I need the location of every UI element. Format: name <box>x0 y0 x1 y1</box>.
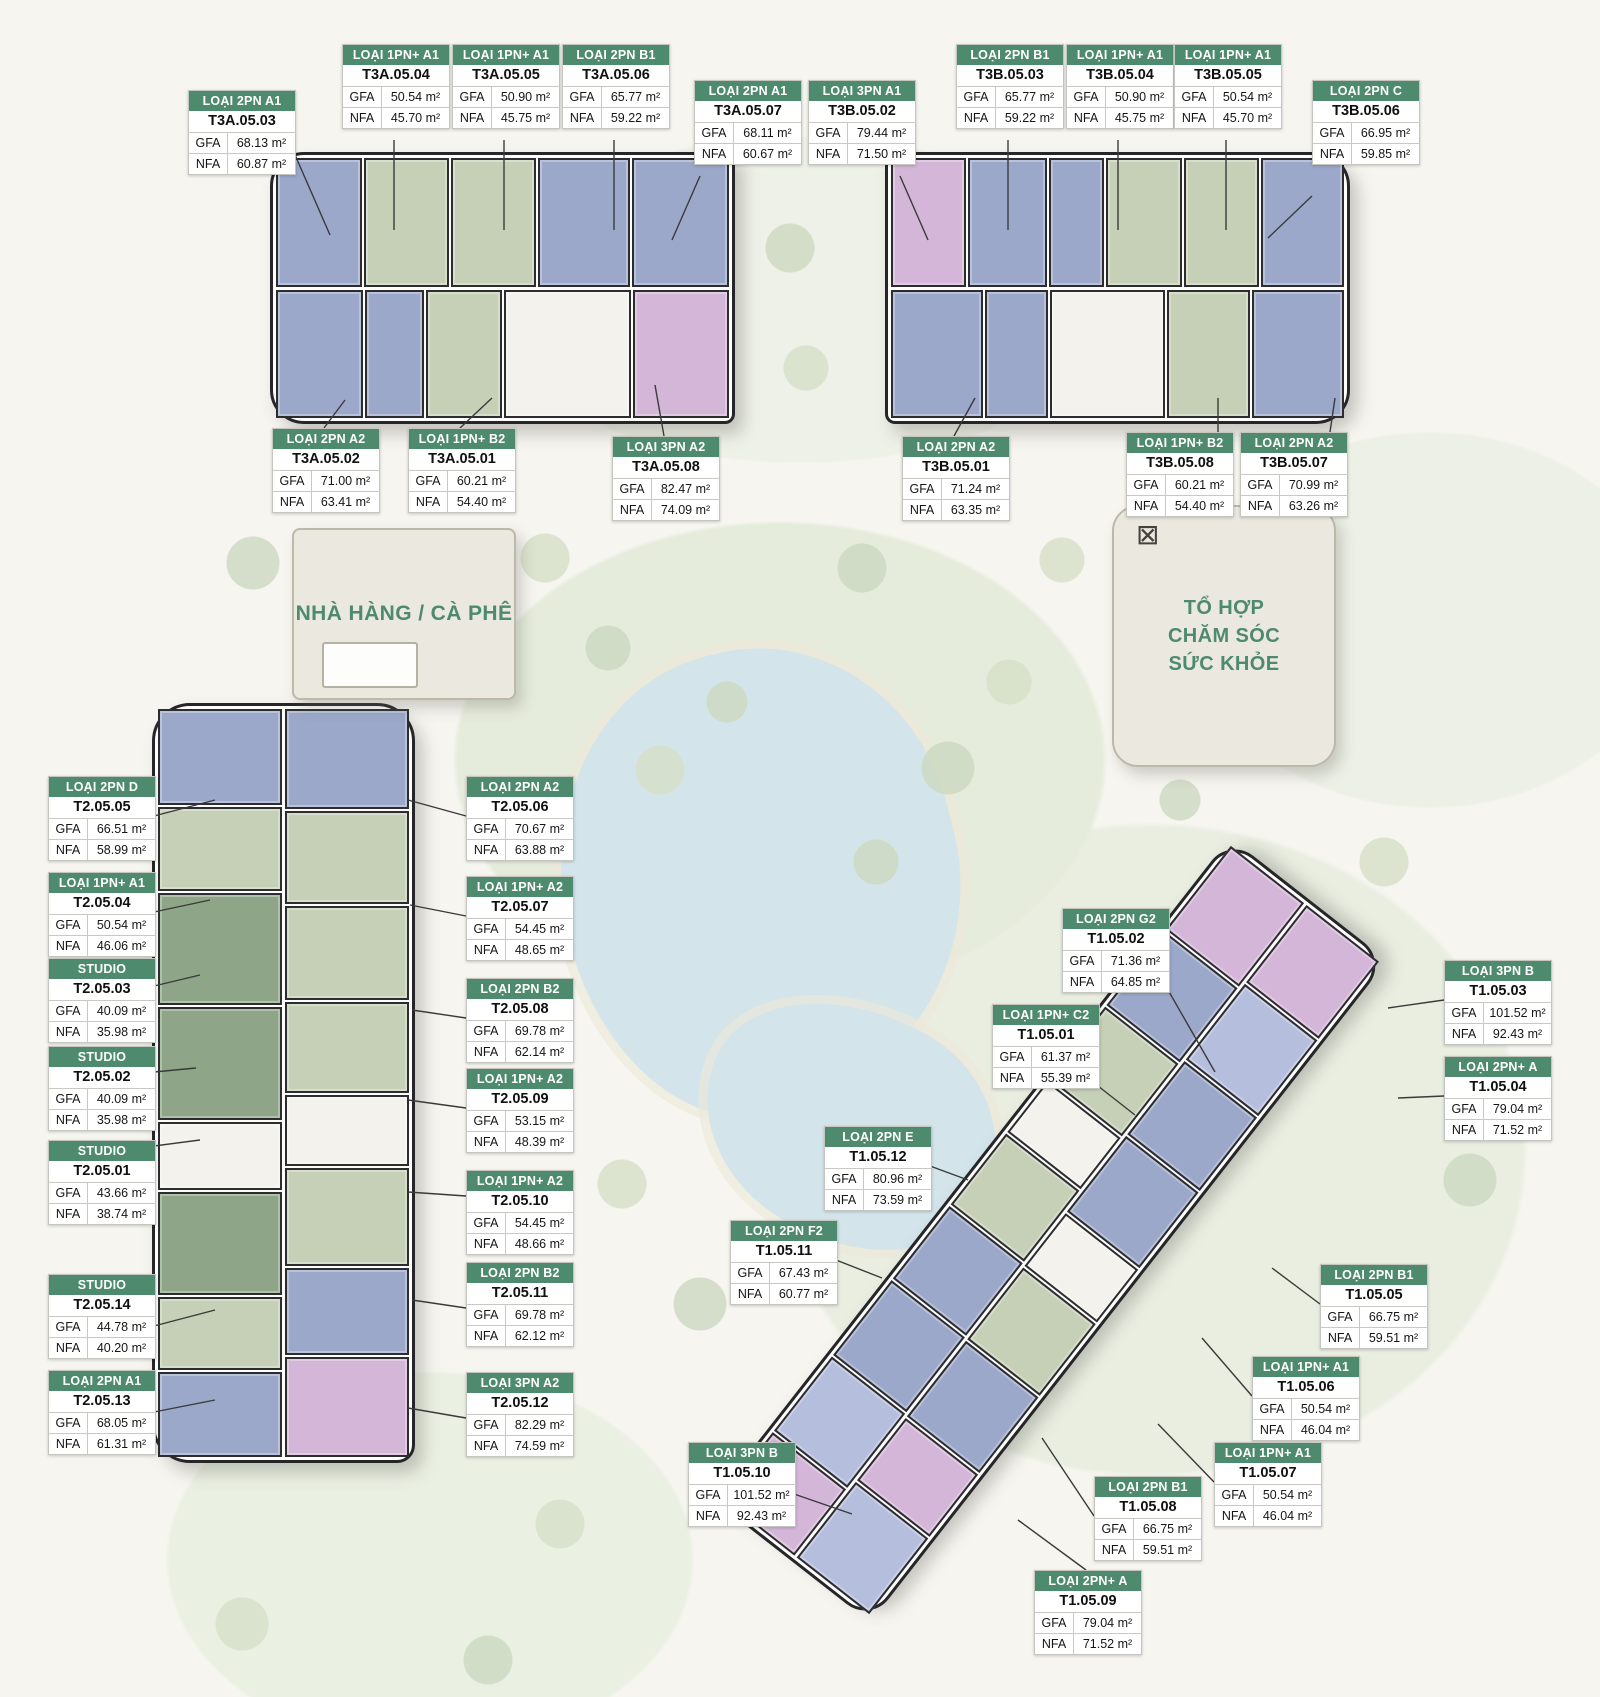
unit-label-T1.05.04[interactable]: LOẠI 2PN+ A T1.05.04 GFA 79.04 m² NFA 71… <box>1444 1056 1552 1141</box>
gfa-row: GFA 50.54 m² <box>343 86 449 107</box>
gfa-key: GFA <box>825 1169 864 1189</box>
nfa-value: 73.59 m² <box>864 1190 931 1210</box>
unit-code: T1.05.08 <box>1095 1497 1201 1518</box>
nfa-row: NFA 45.70 m² <box>343 107 449 128</box>
unit-label-T2.05.04[interactable]: LOẠI 1PN+ A1 T2.05.04 GFA 50.54 m² NFA 4… <box>48 872 156 957</box>
nfa-row: NFA 45.75 m² <box>1067 107 1173 128</box>
nfa-value: 59.51 m² <box>1134 1540 1201 1560</box>
unit-type-header: LOẠI 1PN+ A1 <box>1215 1443 1321 1463</box>
gfa-value: 60.21 m² <box>1166 475 1233 495</box>
nfa-row: NFA 73.59 m² <box>825 1189 931 1210</box>
nfa-key: NFA <box>273 492 312 512</box>
gfa-row: GFA 69.78 m² <box>467 1304 573 1325</box>
nfa-key: NFA <box>1063 972 1102 992</box>
unit-type-header: LOẠI 1PN+ A1 <box>1253 1357 1359 1377</box>
gfa-key: GFA <box>1321 1307 1360 1327</box>
gfa-value: 68.05 m² <box>88 1413 155 1433</box>
nfa-value: 48.65 m² <box>506 940 573 960</box>
unit-type-header: LOẠI 1PN+ A1 <box>1175 45 1281 65</box>
nfa-value: 58.99 m² <box>88 840 155 860</box>
unit-type-header: LOẠI 1PN+ C2 <box>993 1005 1099 1025</box>
unit-code: T1.05.12 <box>825 1147 931 1168</box>
nfa-key: NFA <box>1313 144 1352 164</box>
unit-code: T1.05.07 <box>1215 1463 1321 1484</box>
gfa-key: GFA <box>467 919 506 939</box>
unit-type-header: LOẠI 2PN A1 <box>189 91 295 111</box>
nfa-value: 54.40 m² <box>448 492 515 512</box>
unit-code: T3A.05.02 <box>273 449 379 470</box>
unit-label-T2.05.06[interactable]: LOẠI 2PN A2 T2.05.06 GFA 70.67 m² NFA 63… <box>466 776 574 861</box>
gfa-row: GFA 66.51 m² <box>49 818 155 839</box>
unit-code: T2.05.05 <box>49 797 155 818</box>
nfa-key: NFA <box>49 1204 88 1224</box>
nfa-value: 63.88 m² <box>506 840 573 860</box>
gfa-value: 66.51 m² <box>88 819 155 839</box>
gfa-row: GFA 79.04 m² <box>1035 1612 1141 1633</box>
unit-type-header: LOẠI 2PN B1 <box>1321 1265 1427 1285</box>
nfa-row: NFA 48.39 m² <box>467 1131 573 1152</box>
gfa-value: 61.37 m² <box>1032 1047 1099 1067</box>
nfa-value: 45.75 m² <box>1106 108 1173 128</box>
gfa-value: 82.47 m² <box>652 479 719 499</box>
unit-label-T2.05.09[interactable]: LOẠI 1PN+ A2 T2.05.09 GFA 53.15 m² NFA 4… <box>466 1068 574 1153</box>
nfa-value: 48.66 m² <box>506 1234 573 1254</box>
nfa-value: 92.43 m² <box>728 1506 795 1526</box>
unit-type-header: LOẠI 2PN+ A <box>1035 1571 1141 1591</box>
gfa-row: GFA 101.52 m² <box>1445 1002 1551 1023</box>
unit-label-T3A.05.08[interactable]: LOẠI 3PN A2 T3A.05.08 GFA 82.47 m² NFA 7… <box>612 436 720 521</box>
unit-label-T3A.05.01[interactable]: LOẠI 1PN+ B2 T3A.05.01 GFA 60.21 m² NFA … <box>408 428 516 513</box>
gfa-key: GFA <box>467 1213 506 1233</box>
gfa-row: GFA 66.95 m² <box>1313 122 1419 143</box>
gfa-row: GFA 43.66 m² <box>49 1182 155 1203</box>
nfa-value: 63.35 m² <box>942 500 1009 520</box>
nfa-key: NFA <box>1067 108 1106 128</box>
gfa-key: GFA <box>49 1089 88 1109</box>
unit-label-T3B.05.03[interactable]: LOẠI 2PN B1 T3B.05.03 GFA 65.77 m² NFA 5… <box>956 44 1064 129</box>
gfa-value: 79.44 m² <box>848 123 915 143</box>
nfa-key: NFA <box>825 1190 864 1210</box>
nfa-key: NFA <box>49 936 88 956</box>
nfa-key: NFA <box>1175 108 1214 128</box>
unit-label-T3B.05.04[interactable]: LOẠI 1PN+ A1 T3B.05.04 GFA 50.90 m² NFA … <box>1066 44 1174 129</box>
nfa-value: 62.14 m² <box>506 1042 573 1062</box>
nfa-row: NFA 71.50 m² <box>809 143 915 164</box>
gfa-row: GFA 82.47 m² <box>613 478 719 499</box>
unit-label-T2.05.08[interactable]: LOẠI 2PN B2 T2.05.08 GFA 69.78 m² NFA 62… <box>466 978 574 1063</box>
unit-label-T1.05.02[interactable]: LOẠI 2PN G2 T1.05.02 GFA 71.36 m² NFA 64… <box>1062 908 1170 993</box>
gfa-key: GFA <box>467 819 506 839</box>
unit-label-T1.05.09[interactable]: LOẠI 2PN+ A T1.05.09 GFA 79.04 m² NFA 71… <box>1034 1570 1142 1655</box>
nfa-key: NFA <box>467 1042 506 1062</box>
unit-type-header: LOẠI 2PN A2 <box>1241 433 1347 453</box>
gfa-value: 44.78 m² <box>88 1317 155 1337</box>
unit-code: T1.05.09 <box>1035 1591 1141 1612</box>
gfa-row: GFA 66.75 m² <box>1095 1518 1201 1539</box>
unit-code: T1.05.02 <box>1063 929 1169 950</box>
gfa-value: 53.15 m² <box>506 1111 573 1131</box>
unit-label-T2.05.11[interactable]: LOẠI 2PN B2 T2.05.11 GFA 69.78 m² NFA 62… <box>466 1262 574 1347</box>
gfa-key: GFA <box>993 1047 1032 1067</box>
gfa-key: GFA <box>689 1485 728 1505</box>
unit-label-T3B.05.01[interactable]: LOẠI 2PN A2 T3B.05.01 GFA 71.24 m² NFA 6… <box>902 436 1010 521</box>
unit-type-header: LOẠI 1PN+ A2 <box>467 1069 573 1089</box>
gfa-key: GFA <box>1241 475 1280 495</box>
unit-code: T3B.05.08 <box>1127 453 1233 474</box>
unit-type-header: LOẠI 1PN+ B2 <box>1127 433 1233 453</box>
nfa-value: 40.20 m² <box>88 1338 155 1358</box>
nfa-value: 59.22 m² <box>602 108 669 128</box>
unit-code: T2.05.12 <box>467 1393 573 1414</box>
unit-code: T3B.05.07 <box>1241 453 1347 474</box>
gfa-key: GFA <box>273 471 312 491</box>
unit-label-T2.05.03[interactable]: STUDIO T2.05.03 GFA 40.09 m² NFA 35.98 m… <box>48 958 156 1043</box>
nfa-key: NFA <box>453 108 492 128</box>
gfa-key: GFA <box>49 1413 88 1433</box>
unit-label-T1.05.03[interactable]: LOẠI 3PN B T1.05.03 GFA 101.52 m² NFA 92… <box>1444 960 1552 1045</box>
gfa-key: GFA <box>1035 1613 1074 1633</box>
unit-code: T3A.05.03 <box>189 111 295 132</box>
nfa-value: 74.59 m² <box>506 1436 573 1456</box>
gfa-row: GFA 44.78 m² <box>49 1316 155 1337</box>
unit-type-header: STUDIO <box>49 1141 155 1161</box>
unit-type-header: LOẠI 2PN+ A <box>1445 1057 1551 1077</box>
unit-label-T1.05.06[interactable]: LOẠI 1PN+ A1 T1.05.06 GFA 50.54 m² NFA 4… <box>1252 1356 1360 1441</box>
unit-label-T3B.05.08[interactable]: LOẠI 1PN+ B2 T3B.05.08 GFA 60.21 m² NFA … <box>1126 432 1234 517</box>
nfa-value: 60.87 m² <box>228 154 295 174</box>
nfa-row: NFA 59.51 m² <box>1095 1539 1201 1560</box>
nfa-value: 54.40 m² <box>1166 496 1233 516</box>
nfa-value: 71.52 m² <box>1484 1120 1551 1140</box>
nfa-row: NFA 59.22 m² <box>563 107 669 128</box>
gfa-row: GFA 53.15 m² <box>467 1110 573 1131</box>
nfa-key: NFA <box>613 500 652 520</box>
nfa-row: NFA 63.41 m² <box>273 491 379 512</box>
gfa-row: GFA 50.54 m² <box>1215 1484 1321 1505</box>
unit-type-header: LOẠI 2PN A1 <box>695 81 801 101</box>
unit-code: T3A.05.05 <box>453 65 559 86</box>
unit-label-T1.05.12[interactable]: LOẠI 2PN E T1.05.12 GFA 80.96 m² NFA 73.… <box>824 1126 932 1211</box>
gfa-value: 43.66 m² <box>88 1183 155 1203</box>
nfa-row: NFA 45.75 m² <box>453 107 559 128</box>
nfa-key: NFA <box>343 108 382 128</box>
unit-label-T1.05.11[interactable]: LOẠI 2PN F2 T1.05.11 GFA 67.43 m² NFA 60… <box>730 1220 838 1305</box>
gfa-value: 65.77 m² <box>996 87 1063 107</box>
unit-label-T2.05.12[interactable]: LOẠI 3PN A2 T2.05.12 GFA 82.29 m² NFA 74… <box>466 1372 574 1457</box>
nfa-key: NFA <box>1035 1634 1074 1654</box>
nfa-value: 59.22 m² <box>996 108 1063 128</box>
nfa-row: NFA 55.39 m² <box>993 1067 1099 1088</box>
gfa-row: GFA 40.09 m² <box>49 1000 155 1021</box>
nfa-key: NFA <box>467 1234 506 1254</box>
unit-label-T1.05.10[interactable]: LOẠI 3PN B T1.05.10 GFA 101.52 m² NFA 92… <box>688 1442 796 1527</box>
gfa-key: GFA <box>1445 1003 1484 1023</box>
gfa-key: GFA <box>695 123 734 143</box>
gfa-value: 50.90 m² <box>492 87 559 107</box>
nfa-key: NFA <box>49 1434 88 1454</box>
gfa-row: GFA 50.54 m² <box>49 914 155 935</box>
unit-type-header: LOẠI 2PN A2 <box>273 429 379 449</box>
nfa-row: NFA 58.99 m² <box>49 839 155 860</box>
unit-type-header: LOẠI 2PN D <box>49 777 155 797</box>
nfa-row: NFA 60.67 m² <box>695 143 801 164</box>
gfa-value: 66.95 m² <box>1352 123 1419 143</box>
unit-label-T2.05.05[interactable]: LOẠI 2PN D T2.05.05 GFA 66.51 m² NFA 58.… <box>48 776 156 861</box>
nfa-row: NFA 45.70 m² <box>1175 107 1281 128</box>
unit-label-T1.05.05[interactable]: LOẠI 2PN B1 T1.05.05 GFA 66.75 m² NFA 59… <box>1320 1264 1428 1349</box>
unit-type-header: LOẠI 3PN B <box>1445 961 1551 981</box>
gfa-value: 82.29 m² <box>506 1415 573 1435</box>
unit-type-header: LOẠI 1PN+ B2 <box>409 429 515 449</box>
gfa-key: GFA <box>1067 87 1106 107</box>
nfa-row: NFA 59.22 m² <box>957 107 1063 128</box>
unit-type-header: LOẠI 1PN+ A1 <box>343 45 449 65</box>
nfa-value: 60.77 m² <box>770 1284 837 1304</box>
gfa-key: GFA <box>343 87 382 107</box>
gfa-row: GFA 65.77 m² <box>957 86 1063 107</box>
nfa-row: NFA 60.77 m² <box>731 1283 837 1304</box>
unit-code: T3B.05.03 <box>957 65 1063 86</box>
nfa-row: NFA 74.09 m² <box>613 499 719 520</box>
nfa-value: 45.70 m² <box>1214 108 1281 128</box>
gfa-value: 65.77 m² <box>602 87 669 107</box>
unit-type-header: LOẠI 1PN+ A2 <box>467 1171 573 1191</box>
nfa-key: NFA <box>563 108 602 128</box>
unit-type-header: LOẠI 2PN E <box>825 1127 931 1147</box>
unit-type-header: LOẠI 3PN B <box>689 1443 795 1463</box>
gfa-row: GFA 54.45 m² <box>467 1212 573 1233</box>
gfa-key: GFA <box>467 1021 506 1041</box>
gfa-row: GFA 60.21 m² <box>1127 474 1233 495</box>
unit-code: T2.05.10 <box>467 1191 573 1212</box>
gfa-value: 50.54 m² <box>1292 1399 1359 1419</box>
nfa-key: NFA <box>467 940 506 960</box>
nfa-row: NFA 62.14 m² <box>467 1041 573 1062</box>
unit-code: T3A.05.04 <box>343 65 449 86</box>
nfa-row: NFA 92.43 m² <box>1445 1023 1551 1044</box>
gfa-row: GFA 50.90 m² <box>453 86 559 107</box>
gfa-row: GFA 50.54 m² <box>1175 86 1281 107</box>
unit-label-T2.05.07[interactable]: LOẠI 1PN+ A2 T2.05.07 GFA 54.45 m² NFA 4… <box>466 876 574 961</box>
nfa-row: NFA 61.31 m² <box>49 1433 155 1454</box>
gfa-value: 101.52 m² <box>728 1485 795 1505</box>
gfa-key: GFA <box>903 479 942 499</box>
unit-label-T2.05.14[interactable]: STUDIO T2.05.14 GFA 44.78 m² NFA 40.20 m… <box>48 1274 156 1359</box>
nfa-row: NFA 71.52 m² <box>1445 1119 1551 1140</box>
nfa-key: NFA <box>467 840 506 860</box>
unit-type-header: STUDIO <box>49 1275 155 1295</box>
unit-label-T2.05.02[interactable]: STUDIO T2.05.02 GFA 40.09 m² NFA 35.98 m… <box>48 1046 156 1131</box>
nfa-value: 63.26 m² <box>1280 496 1347 516</box>
nfa-key: NFA <box>49 840 88 860</box>
nfa-key: NFA <box>1215 1506 1254 1526</box>
gfa-row: GFA 40.09 m² <box>49 1088 155 1109</box>
nfa-row: NFA 74.59 m² <box>467 1435 573 1456</box>
nfa-key: NFA <box>1445 1120 1484 1140</box>
nfa-value: 38.74 m² <box>88 1204 155 1224</box>
gfa-row: GFA 50.54 m² <box>1253 1398 1359 1419</box>
nfa-key: NFA <box>689 1506 728 1526</box>
nfa-key: NFA <box>49 1110 88 1130</box>
unit-label-T3A.05.03[interactable]: LOẠI 2PN A1 T3A.05.03 GFA 68.13 m² NFA 6… <box>188 90 296 175</box>
unit-type-header: LOẠI 2PN B1 <box>957 45 1063 65</box>
site-floorplan: NHÀ HÀNG / CÀ PHÊ ⊠ TỔ HỢP CHĂM SÓC SỨC … <box>0 0 1600 1697</box>
gfa-value: 60.21 m² <box>448 471 515 491</box>
gfa-value: 50.54 m² <box>382 87 449 107</box>
gfa-value: 71.00 m² <box>312 471 379 491</box>
unit-label-T2.05.01[interactable]: STUDIO T2.05.01 GFA 43.66 m² NFA 38.74 m… <box>48 1140 156 1225</box>
nfa-value: 46.04 m² <box>1254 1506 1321 1526</box>
gfa-value: 54.45 m² <box>506 919 573 939</box>
nfa-value: 74.09 m² <box>652 500 719 520</box>
unit-code: T1.05.11 <box>731 1241 837 1262</box>
unit-code: T3A.05.01 <box>409 449 515 470</box>
gfa-value: 40.09 m² <box>88 1089 155 1109</box>
gfa-value: 50.54 m² <box>1214 87 1281 107</box>
gfa-row: GFA 80.96 m² <box>825 1168 931 1189</box>
gfa-key: GFA <box>1445 1099 1484 1119</box>
nfa-row: NFA 64.85 m² <box>1063 971 1169 992</box>
nfa-key: NFA <box>1127 496 1166 516</box>
nfa-row: NFA 35.98 m² <box>49 1021 155 1042</box>
nfa-row: NFA 38.74 m² <box>49 1203 155 1224</box>
unit-label-T3A.05.04[interactable]: LOẠI 1PN+ A1 T3A.05.04 GFA 50.54 m² NFA … <box>342 44 450 129</box>
nfa-row: NFA 63.35 m² <box>903 499 1009 520</box>
nfa-key: NFA <box>993 1068 1032 1088</box>
unit-code: T3B.05.06 <box>1313 101 1419 122</box>
nfa-row: NFA 40.20 m² <box>49 1337 155 1358</box>
gfa-key: GFA <box>49 915 88 935</box>
nfa-row: NFA 46.04 m² <box>1253 1419 1359 1440</box>
nfa-row: NFA 46.06 m² <box>49 935 155 956</box>
unit-code: T2.05.13 <box>49 1391 155 1412</box>
unit-code: T3B.05.04 <box>1067 65 1173 86</box>
gfa-row: GFA 66.75 m² <box>1321 1306 1427 1327</box>
gfa-key: GFA <box>1127 475 1166 495</box>
nfa-key: NFA <box>1445 1024 1484 1044</box>
labels-layer: LOẠI 2PN A1 T3A.05.03 GFA 68.13 m² NFA 6… <box>0 0 1600 1697</box>
nfa-row: NFA 35.98 m² <box>49 1109 155 1130</box>
gfa-row: GFA 101.52 m² <box>689 1484 795 1505</box>
gfa-key: GFA <box>563 87 602 107</box>
unit-label-T1.05.08[interactable]: LOẠI 2PN B1 T1.05.08 GFA 66.75 m² NFA 59… <box>1094 1476 1202 1561</box>
unit-label-T2.05.10[interactable]: LOẠI 1PN+ A2 T2.05.10 GFA 54.45 m² NFA 4… <box>466 1170 574 1255</box>
gfa-row: GFA 79.04 m² <box>1445 1098 1551 1119</box>
gfa-row: GFA 71.00 m² <box>273 470 379 491</box>
unit-type-header: LOẠI 1PN+ A1 <box>453 45 559 65</box>
gfa-row: GFA 54.45 m² <box>467 918 573 939</box>
unit-code: T1.05.06 <box>1253 1377 1359 1398</box>
nfa-row: NFA 59.51 m² <box>1321 1327 1427 1348</box>
gfa-row: GFA 71.36 m² <box>1063 950 1169 971</box>
nfa-value: 64.85 m² <box>1102 972 1169 992</box>
unit-label-T3B.05.07[interactable]: LOẠI 2PN A2 T3B.05.07 GFA 70.99 m² NFA 6… <box>1240 432 1348 517</box>
gfa-key: GFA <box>613 479 652 499</box>
unit-type-header: LOẠI 2PN B1 <box>1095 1477 1201 1497</box>
gfa-key: GFA <box>1095 1519 1134 1539</box>
gfa-value: 70.99 m² <box>1280 475 1347 495</box>
nfa-key: NFA <box>695 144 734 164</box>
unit-code: T3A.05.08 <box>613 457 719 478</box>
gfa-row: GFA 68.05 m² <box>49 1412 155 1433</box>
gfa-key: GFA <box>49 1317 88 1337</box>
gfa-value: 80.96 m² <box>864 1169 931 1189</box>
unit-code: T2.05.06 <box>467 797 573 818</box>
gfa-value: 69.78 m² <box>506 1021 573 1041</box>
gfa-row: GFA 61.37 m² <box>993 1046 1099 1067</box>
nfa-row: NFA 63.26 m² <box>1241 495 1347 516</box>
nfa-value: 55.39 m² <box>1032 1068 1099 1088</box>
unit-code: T2.05.11 <box>467 1283 573 1304</box>
unit-code: T3A.05.07 <box>695 101 801 122</box>
gfa-row: GFA 50.90 m² <box>1067 86 1173 107</box>
nfa-row: NFA 48.66 m² <box>467 1233 573 1254</box>
gfa-row: GFA 82.29 m² <box>467 1414 573 1435</box>
gfa-value: 50.54 m² <box>1254 1485 1321 1505</box>
nfa-key: NFA <box>1095 1540 1134 1560</box>
unit-code: T3B.05.05 <box>1175 65 1281 86</box>
nfa-key: NFA <box>1241 496 1280 516</box>
unit-type-header: LOẠI 2PN A2 <box>467 777 573 797</box>
nfa-value: 63.41 m² <box>312 492 379 512</box>
unit-label-T3A.05.02[interactable]: LOẠI 2PN A2 T3A.05.02 GFA 71.00 m² NFA 6… <box>272 428 380 513</box>
gfa-key: GFA <box>731 1263 770 1283</box>
nfa-row: NFA 46.04 m² <box>1215 1505 1321 1526</box>
nfa-key: NFA <box>467 1132 506 1152</box>
unit-type-header: LOẠI 3PN A2 <box>613 437 719 457</box>
gfa-row: GFA 65.77 m² <box>563 86 669 107</box>
unit-code: T3B.05.02 <box>809 101 915 122</box>
unit-code: T2.05.14 <box>49 1295 155 1316</box>
nfa-value: 92.43 m² <box>1484 1024 1551 1044</box>
gfa-row: GFA 79.44 m² <box>809 122 915 143</box>
nfa-key: NFA <box>49 1022 88 1042</box>
unit-label-T3A.05.07[interactable]: LOẠI 2PN A1 T3A.05.07 GFA 68.11 m² NFA 6… <box>694 80 802 165</box>
gfa-row: GFA 69.78 m² <box>467 1020 573 1041</box>
gfa-key: GFA <box>467 1111 506 1131</box>
gfa-value: 79.04 m² <box>1484 1099 1551 1119</box>
unit-type-header: LOẠI 1PN+ A1 <box>1067 45 1173 65</box>
unit-label-T3B.05.06[interactable]: LOẠI 2PN C T3B.05.06 GFA 66.95 m² NFA 59… <box>1312 80 1420 165</box>
gfa-value: 71.24 m² <box>942 479 1009 499</box>
nfa-row: NFA 71.52 m² <box>1035 1633 1141 1654</box>
unit-code: T1.05.01 <box>993 1025 1099 1046</box>
unit-type-header: STUDIO <box>49 1047 155 1067</box>
gfa-key: GFA <box>467 1415 506 1435</box>
gfa-row: GFA 60.21 m² <box>409 470 515 491</box>
unit-type-header: LOẠI 3PN A2 <box>467 1373 573 1393</box>
unit-label-T3A.05.06[interactable]: LOẠI 2PN B1 T3A.05.06 GFA 65.77 m² NFA 5… <box>562 44 670 129</box>
gfa-value: 79.04 m² <box>1074 1613 1141 1633</box>
unit-label-T3A.05.05[interactable]: LOẠI 1PN+ A1 T3A.05.05 GFA 50.90 m² NFA … <box>452 44 560 129</box>
unit-label-T3B.05.02[interactable]: LOẠI 3PN A1 T3B.05.02 GFA 79.44 m² NFA 7… <box>808 80 916 165</box>
nfa-key: NFA <box>731 1284 770 1304</box>
unit-type-header: LOẠI 3PN A1 <box>809 81 915 101</box>
unit-label-T1.05.01[interactable]: LOẠI 1PN+ C2 T1.05.01 GFA 61.37 m² NFA 5… <box>992 1004 1100 1089</box>
gfa-value: 66.75 m² <box>1360 1307 1427 1327</box>
nfa-value: 45.75 m² <box>492 108 559 128</box>
unit-label-T1.05.07[interactable]: LOẠI 1PN+ A1 T1.05.07 GFA 50.54 m² NFA 4… <box>1214 1442 1322 1527</box>
unit-label-T3B.05.05[interactable]: LOẠI 1PN+ A1 T3B.05.05 GFA 50.54 m² NFA … <box>1174 44 1282 129</box>
gfa-key: GFA <box>1313 123 1352 143</box>
nfa-row: NFA 60.87 m² <box>189 153 295 174</box>
unit-label-T2.05.13[interactable]: LOẠI 2PN A1 T2.05.13 GFA 68.05 m² NFA 61… <box>48 1370 156 1455</box>
gfa-value: 69.78 m² <box>506 1305 573 1325</box>
nfa-value: 59.51 m² <box>1360 1328 1427 1348</box>
nfa-row: NFA 54.40 m² <box>409 491 515 512</box>
gfa-key: GFA <box>957 87 996 107</box>
nfa-value: 45.70 m² <box>382 108 449 128</box>
